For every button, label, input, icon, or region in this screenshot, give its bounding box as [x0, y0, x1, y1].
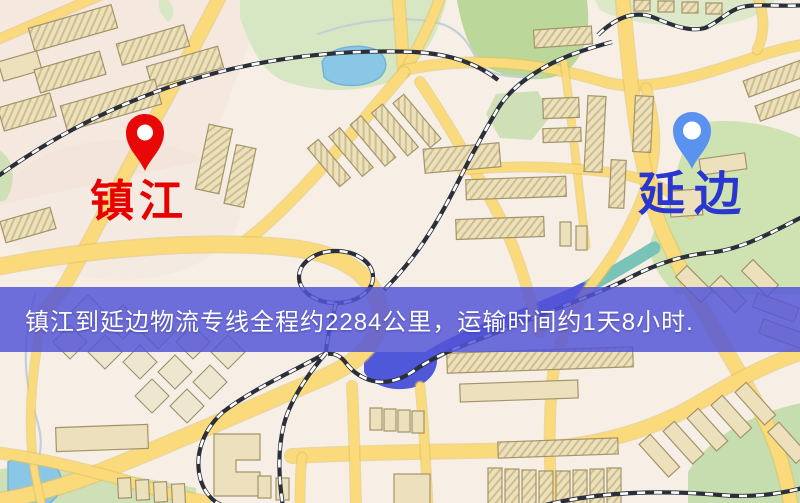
map-stage: 镇江到延边物流专线全程约2284公里，运输时间约1天8小时. 镇江 延边 — [0, 0, 800, 503]
pin-body — [673, 112, 711, 169]
pin-hole — [683, 122, 701, 140]
map-canvas[interactable] — [0, 0, 800, 503]
destination-pin-icon[interactable] — [669, 109, 715, 171]
pin-body — [126, 114, 164, 171]
pin-hole — [137, 125, 153, 141]
route-info-text: 镇江到延边物流专线全程约2284公里，运输时间约1天8小时. — [25, 302, 694, 337]
route-info-banner: 镇江到延边物流专线全程约2284公里，运输时间约1天8小时. — [0, 287, 800, 352]
origin-pin-icon[interactable] — [122, 111, 168, 173]
origin-city-label: 镇江 — [90, 180, 188, 224]
destination-city-label: 延边 — [638, 170, 750, 217]
